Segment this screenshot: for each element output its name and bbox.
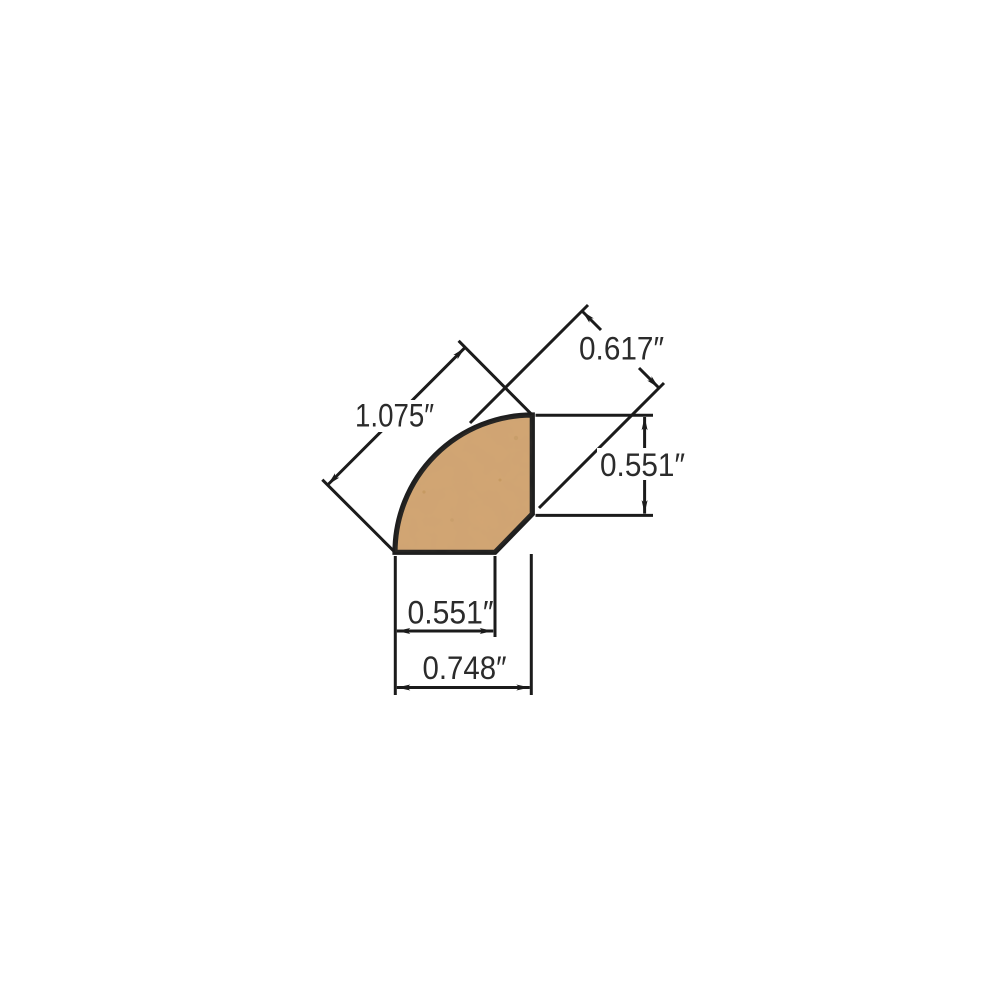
svg-text:0.551″: 0.551″: [408, 595, 494, 631]
svg-text:0.748″: 0.748″: [423, 650, 507, 686]
svg-text:0.551″: 0.551″: [600, 447, 685, 483]
svg-text:0.617″: 0.617″: [579, 331, 664, 367]
svg-text:1.075″: 1.075″: [355, 398, 434, 434]
